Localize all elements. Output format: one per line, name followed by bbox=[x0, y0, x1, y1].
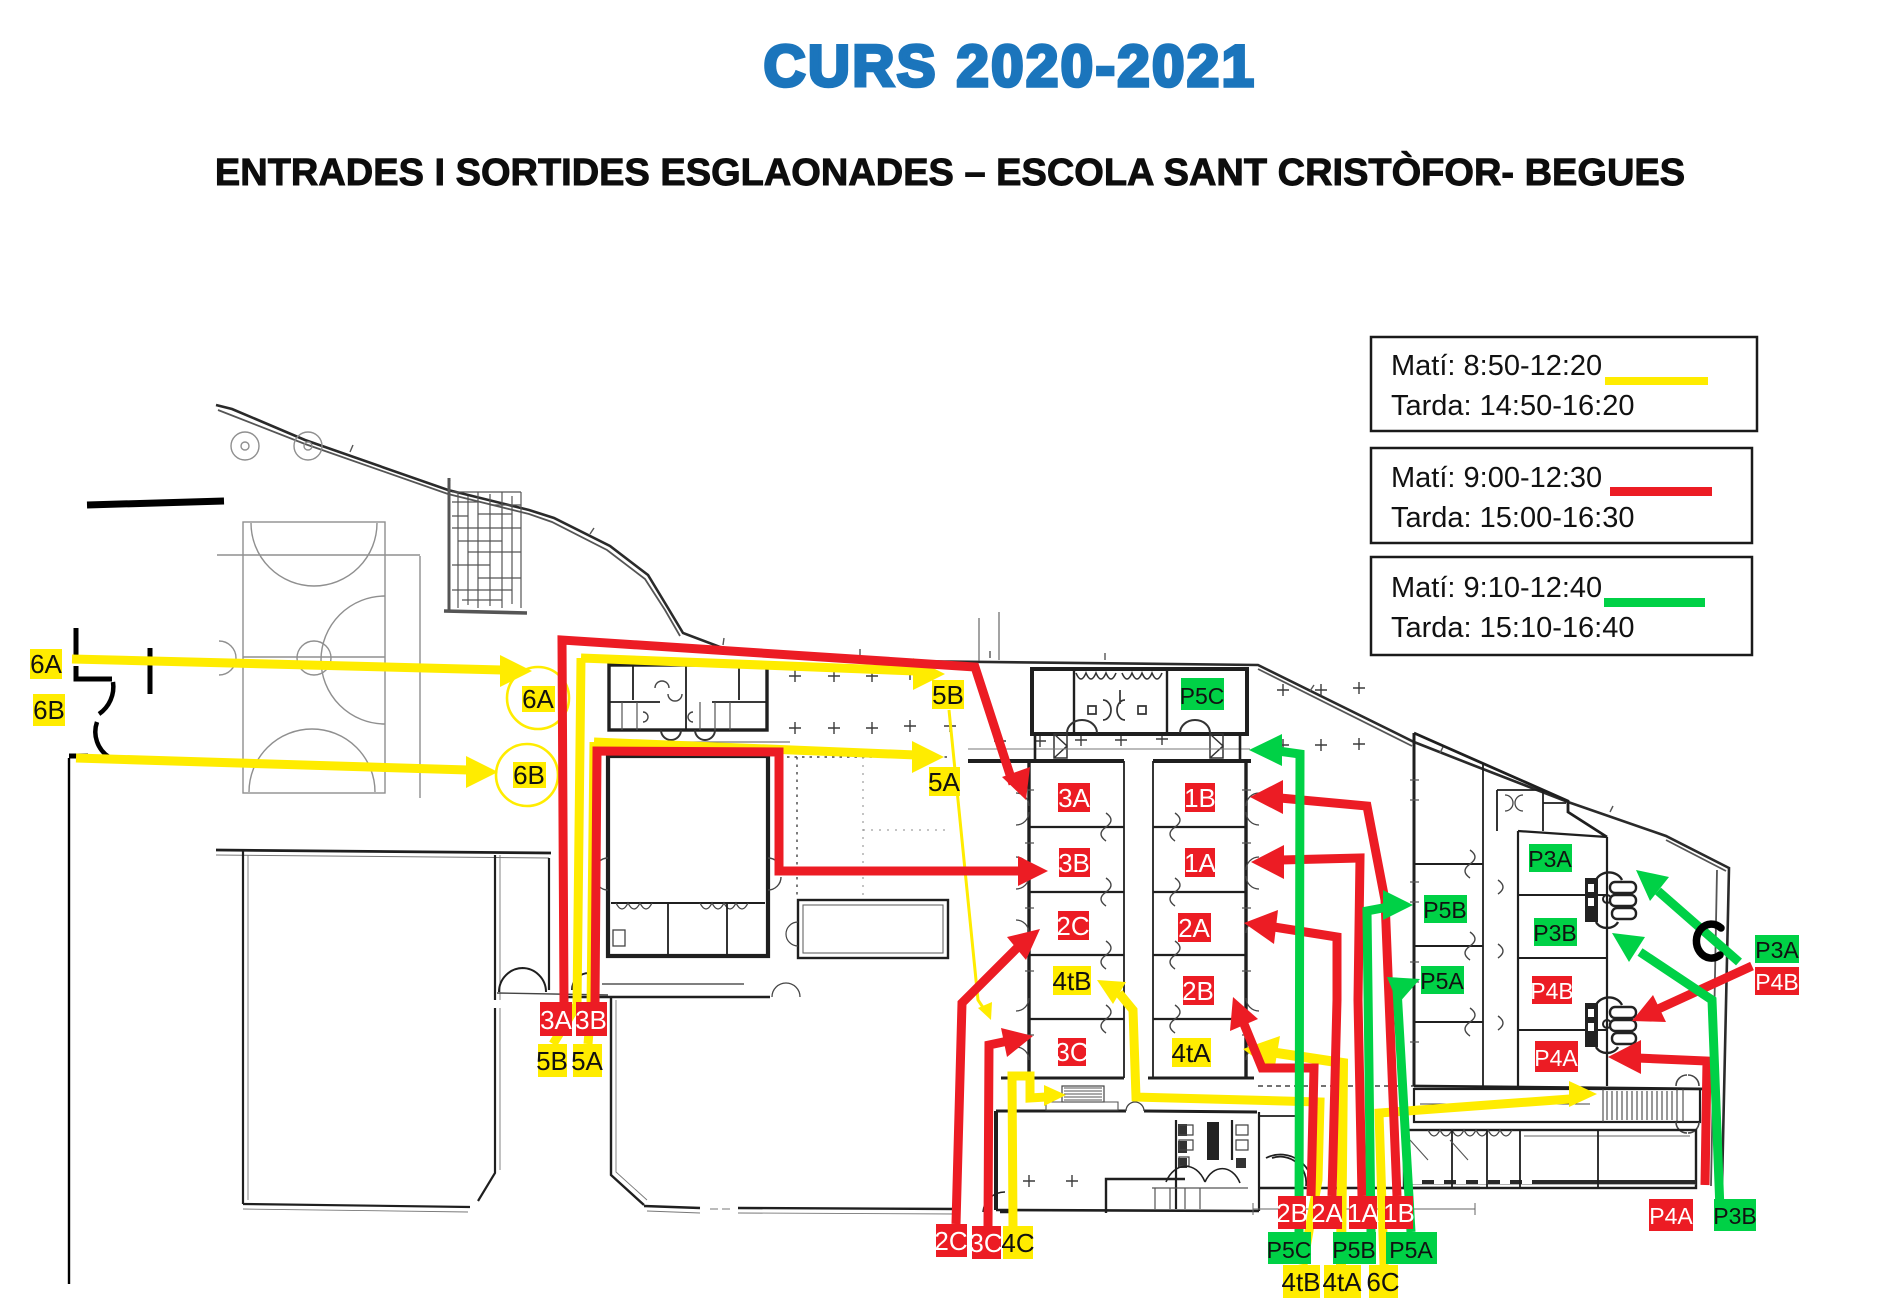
svg-text:3C: 3C bbox=[969, 1228, 1002, 1258]
svg-text:Matí: 8:50-12:20: Matí: 8:50-12:20 bbox=[1391, 350, 1602, 382]
svg-text:2A: 2A bbox=[1311, 1198, 1343, 1228]
svg-text:3C: 3C bbox=[1055, 1037, 1088, 1067]
svg-text:4tB: 4tB bbox=[1281, 1267, 1320, 1297]
svg-text:P5A: P5A bbox=[1389, 1237, 1433, 1263]
svg-text:4tA: 4tA bbox=[1322, 1267, 1362, 1297]
svg-text:ENTRADES I SORTIDES ESGLAONADE: ENTRADES I SORTIDES ESGLAONADES – ESCOLA… bbox=[215, 150, 1685, 194]
svg-text:2A: 2A bbox=[1178, 913, 1210, 943]
svg-text:P5B: P5B bbox=[1332, 1237, 1375, 1263]
svg-text:P4A: P4A bbox=[1649, 1203, 1693, 1229]
svg-text:P5B: P5B bbox=[1423, 897, 1466, 923]
svg-text:6C: 6C bbox=[1366, 1267, 1399, 1297]
svg-text:6A: 6A bbox=[522, 684, 554, 714]
svg-text:3B: 3B bbox=[575, 1005, 607, 1035]
svg-text:P3B: P3B bbox=[1713, 1203, 1756, 1229]
svg-text:6B: 6B bbox=[513, 760, 545, 790]
svg-text:P5A: P5A bbox=[1420, 968, 1464, 994]
svg-text:Tarda: 15:10-16:40: Tarda: 15:10-16:40 bbox=[1391, 612, 1634, 644]
svg-text:5A: 5A bbox=[928, 767, 960, 797]
svg-text:CURS 2020-2021: CURS 2020-2021 bbox=[764, 34, 1257, 99]
svg-text:4tB: 4tB bbox=[1052, 966, 1091, 996]
svg-text:P3B: P3B bbox=[1533, 920, 1576, 946]
svg-text:P3A: P3A bbox=[1528, 846, 1572, 872]
svg-text:3A: 3A bbox=[540, 1005, 572, 1035]
svg-text:2B: 2B bbox=[1276, 1198, 1308, 1228]
svg-text:5B: 5B bbox=[536, 1046, 568, 1076]
svg-text:5B: 5B bbox=[932, 680, 964, 710]
svg-text:P5C: P5C bbox=[1267, 1237, 1312, 1263]
svg-text:4C: 4C bbox=[1001, 1228, 1034, 1258]
svg-text:2B: 2B bbox=[1182, 976, 1214, 1006]
svg-text:Matí: 9:00-12:30: Matí: 9:00-12:30 bbox=[1391, 462, 1602, 494]
svg-text:P4B: P4B bbox=[1530, 978, 1573, 1004]
svg-text:4tA: 4tA bbox=[1171, 1038, 1211, 1068]
svg-text:1A: 1A bbox=[1184, 848, 1216, 878]
svg-text:1B: 1B bbox=[1383, 1198, 1415, 1228]
svg-text:2C: 2C bbox=[1056, 911, 1089, 941]
svg-text:5A: 5A bbox=[571, 1046, 603, 1076]
svg-text:P3A: P3A bbox=[1755, 937, 1799, 963]
svg-text:1B: 1B bbox=[1184, 783, 1216, 813]
svg-text:Tarda: 14:50-16:20: Tarda: 14:50-16:20 bbox=[1391, 390, 1634, 422]
svg-text:6A: 6A bbox=[30, 649, 62, 679]
svg-text:3B: 3B bbox=[1058, 848, 1090, 878]
svg-text:Matí: 9:10-12:40: Matí: 9:10-12:40 bbox=[1391, 572, 1602, 604]
svg-text:P5C: P5C bbox=[1180, 683, 1225, 709]
svg-text:Tarda: 15:00-16:30: Tarda: 15:00-16:30 bbox=[1391, 502, 1634, 534]
svg-text:1A: 1A bbox=[1347, 1198, 1379, 1228]
svg-text:P4A: P4A bbox=[1534, 1045, 1578, 1071]
svg-text:6B: 6B bbox=[33, 695, 65, 725]
svg-text:2C: 2C bbox=[934, 1226, 967, 1256]
svg-text:3A: 3A bbox=[1058, 783, 1090, 813]
svg-text:P4B: P4B bbox=[1755, 969, 1798, 995]
